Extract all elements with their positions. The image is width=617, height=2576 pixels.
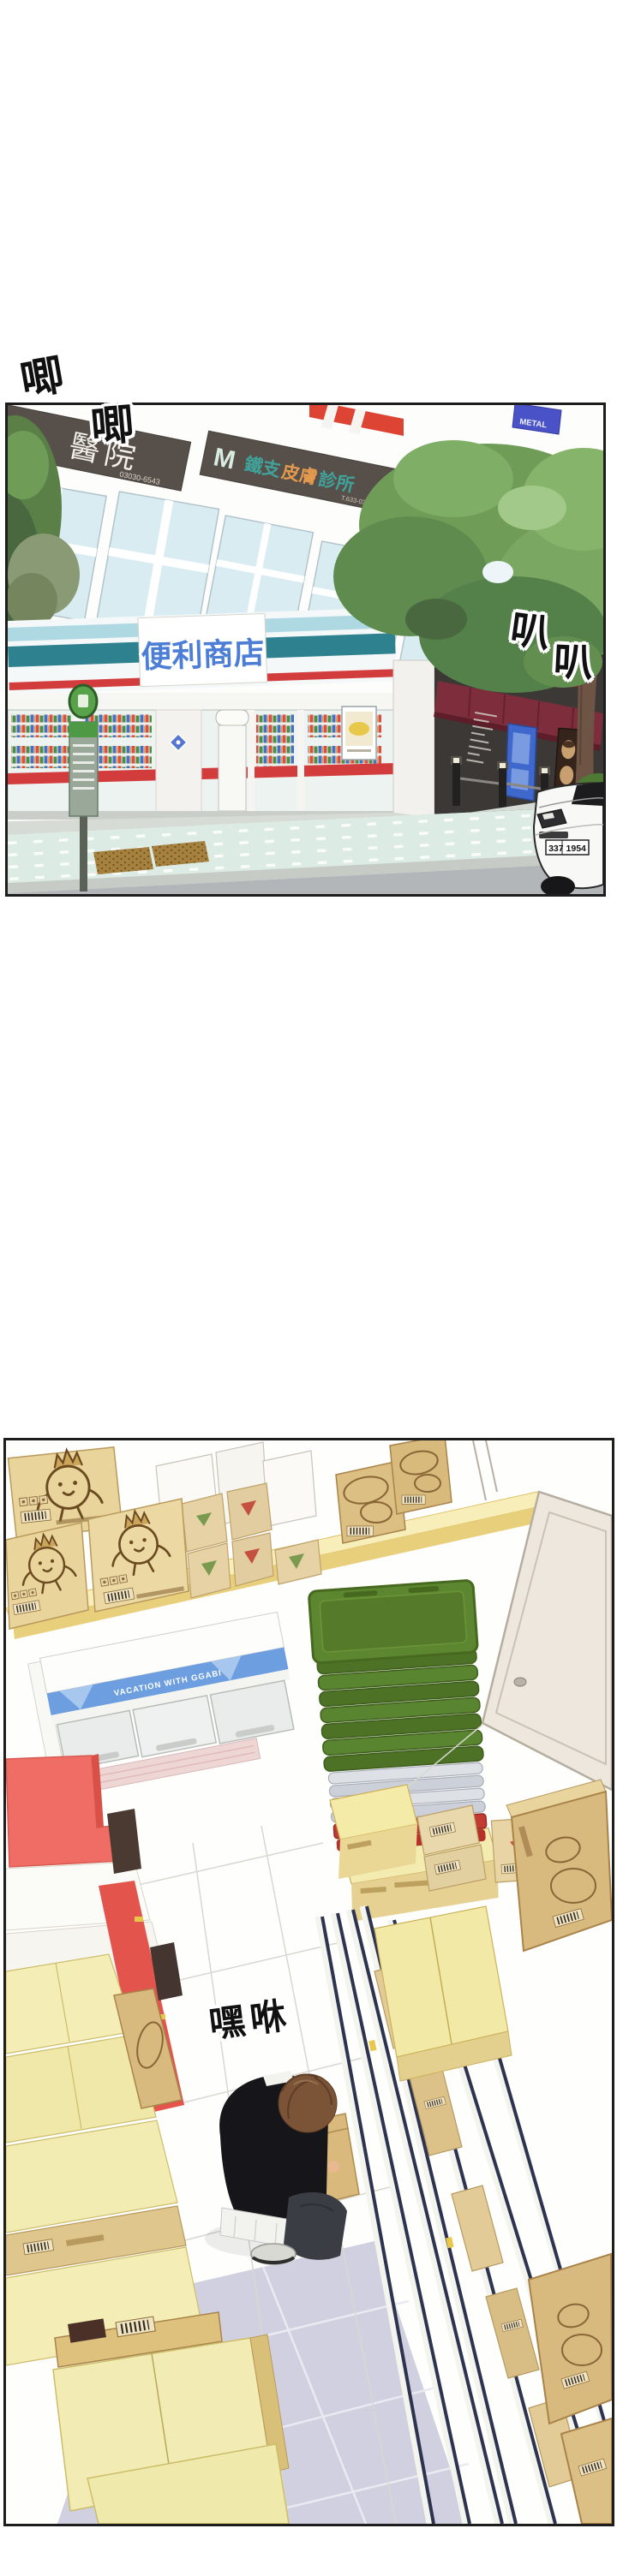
store-column xyxy=(156,710,201,813)
bear-box-top xyxy=(506,1780,612,1951)
sfx-squeak-1: 唧 xyxy=(17,353,67,402)
green-trays xyxy=(308,1580,485,1772)
cafe-door xyxy=(506,724,536,801)
panel-stockroom-scene: VACATION WITH GGABI xyxy=(3,1438,614,2526)
air-curtain xyxy=(216,710,249,725)
worker-hand xyxy=(327,2161,339,2173)
store-sign-text: 便利商店 xyxy=(141,635,265,675)
bottom-left-cartons xyxy=(53,2312,289,2524)
sfx-honk-1: 叭 xyxy=(508,609,553,653)
store-awning: 便利商店 xyxy=(8,607,397,695)
license-plate-text: 337 1954 xyxy=(548,844,586,854)
sfx-squeak-2: 唧 xyxy=(89,402,135,449)
license-plate: 337 1954 xyxy=(546,840,589,855)
stockroom-scene-art: VACATION WITH GGABI xyxy=(6,1440,612,2524)
store-entrance-door xyxy=(219,725,246,811)
corner-column xyxy=(393,660,434,821)
storefront xyxy=(8,693,395,820)
sfx-heave: 嘿咻 xyxy=(207,1997,293,2042)
doorknob xyxy=(514,1678,526,1686)
window-poster xyxy=(342,707,376,760)
sfx-honk-2: 叭 xyxy=(553,641,594,683)
